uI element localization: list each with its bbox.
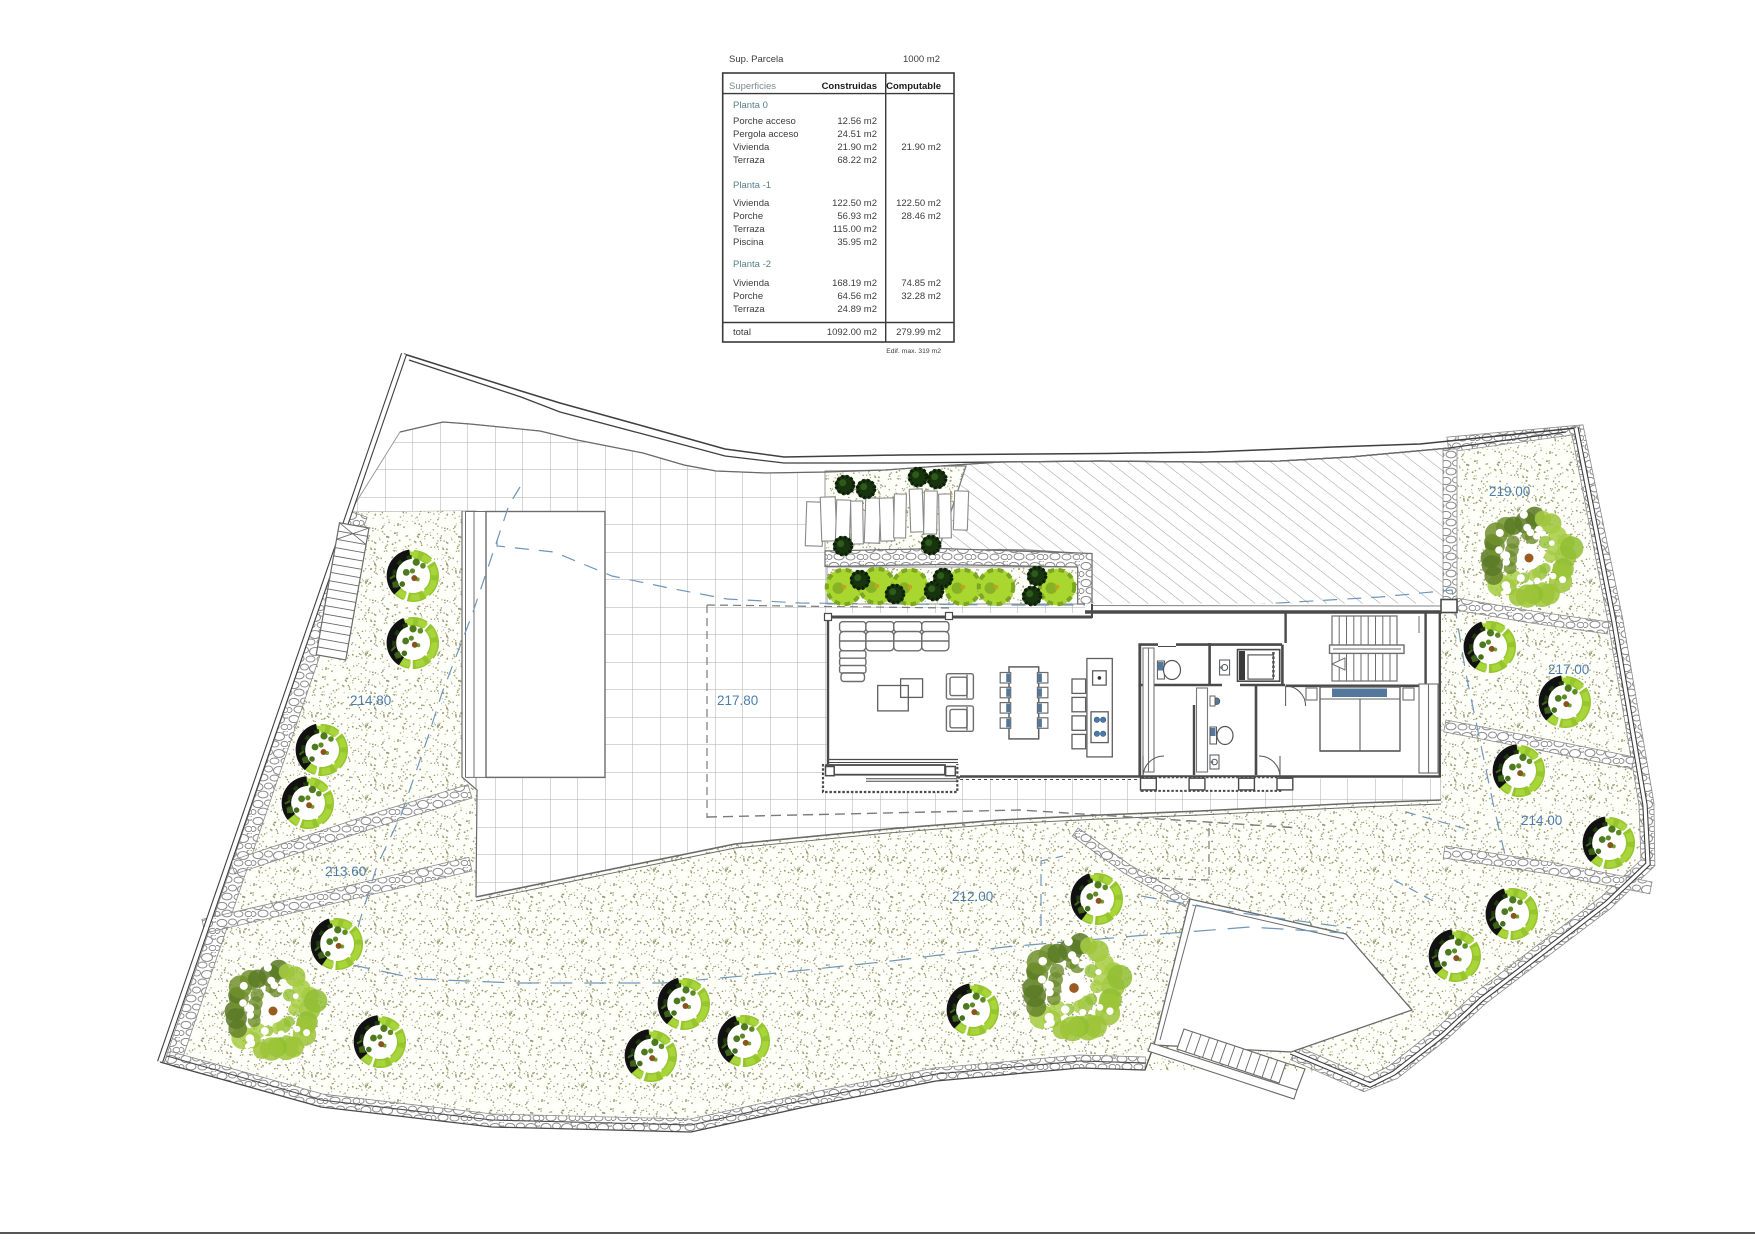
svg-text:Vivienda: Vivienda	[733, 198, 770, 209]
svg-text:35.95 m2: 35.95 m2	[837, 237, 877, 248]
svg-text:115.00 m2: 115.00 m2	[833, 224, 877, 235]
svg-text:122.50 m2: 122.50 m2	[896, 198, 941, 209]
svg-text:214.00: 214.00	[1521, 813, 1562, 828]
svg-text:Vivienda: Vivienda	[733, 142, 770, 153]
svg-text:21.90 m2: 21.90 m2	[901, 142, 941, 153]
svg-text:Planta 0: Planta 0	[733, 100, 768, 111]
svg-text:Terraza: Terraza	[733, 224, 765, 235]
svg-text:214.80: 214.80	[350, 693, 391, 708]
svg-text:Porche acceso: Porche acceso	[733, 116, 796, 127]
svg-text:32.28 m2: 32.28 m2	[901, 291, 941, 302]
svg-text:21.90 m2: 21.90 m2	[837, 142, 877, 153]
svg-text:56.93 m2: 56.93 m2	[837, 211, 877, 222]
svg-text:168.19 m2: 168.19 m2	[832, 278, 877, 289]
svg-text:24.89 m2: 24.89 m2	[837, 304, 877, 315]
svg-text:279.99 m2: 279.99 m2	[896, 327, 941, 338]
svg-text:Planta -2: Planta -2	[733, 259, 771, 270]
svg-text:217.80: 217.80	[717, 693, 758, 708]
svg-text:Porche: Porche	[733, 211, 763, 222]
svg-text:Terraza: Terraza	[733, 155, 765, 166]
svg-text:64.56 m2: 64.56 m2	[837, 291, 877, 302]
svg-text:Planta -1: Planta -1	[733, 180, 771, 191]
svg-text:1000 m2: 1000 m2	[903, 54, 940, 65]
svg-text:Porche: Porche	[733, 291, 763, 302]
svg-text:Vivienda: Vivienda	[733, 278, 770, 289]
svg-text:213.60: 213.60	[325, 864, 366, 879]
svg-text:219.00: 219.00	[1489, 484, 1530, 499]
svg-text:12.56 m2: 12.56 m2	[837, 116, 877, 127]
svg-text:Pergola acceso: Pergola acceso	[733, 129, 798, 140]
svg-text:Piscina: Piscina	[733, 237, 764, 248]
svg-text:24.51 m2: 24.51 m2	[837, 129, 877, 140]
svg-text:total: total	[733, 327, 751, 338]
svg-text:Edif. max. 319 m2: Edif. max. 319 m2	[886, 348, 941, 355]
svg-text:1092.00 m2: 1092.00 m2	[827, 327, 877, 338]
svg-text:74.85 m2: 74.85 m2	[901, 278, 941, 289]
svg-text:217.00: 217.00	[1548, 662, 1589, 677]
svg-text:122.50 m2: 122.50 m2	[832, 198, 877, 209]
svg-text:Superficies: Superficies	[729, 81, 776, 92]
svg-text:Construidas: Construidas	[822, 81, 877, 92]
svg-text:28.46 m2: 28.46 m2	[901, 211, 941, 222]
svg-text:Sup. Parcela: Sup. Parcela	[729, 54, 784, 65]
svg-text:68.22 m2: 68.22 m2	[837, 155, 877, 166]
svg-text:212.00: 212.00	[952, 889, 993, 904]
svg-text:Terraza: Terraza	[733, 304, 765, 315]
svg-text:Computable: Computable	[886, 81, 941, 92]
